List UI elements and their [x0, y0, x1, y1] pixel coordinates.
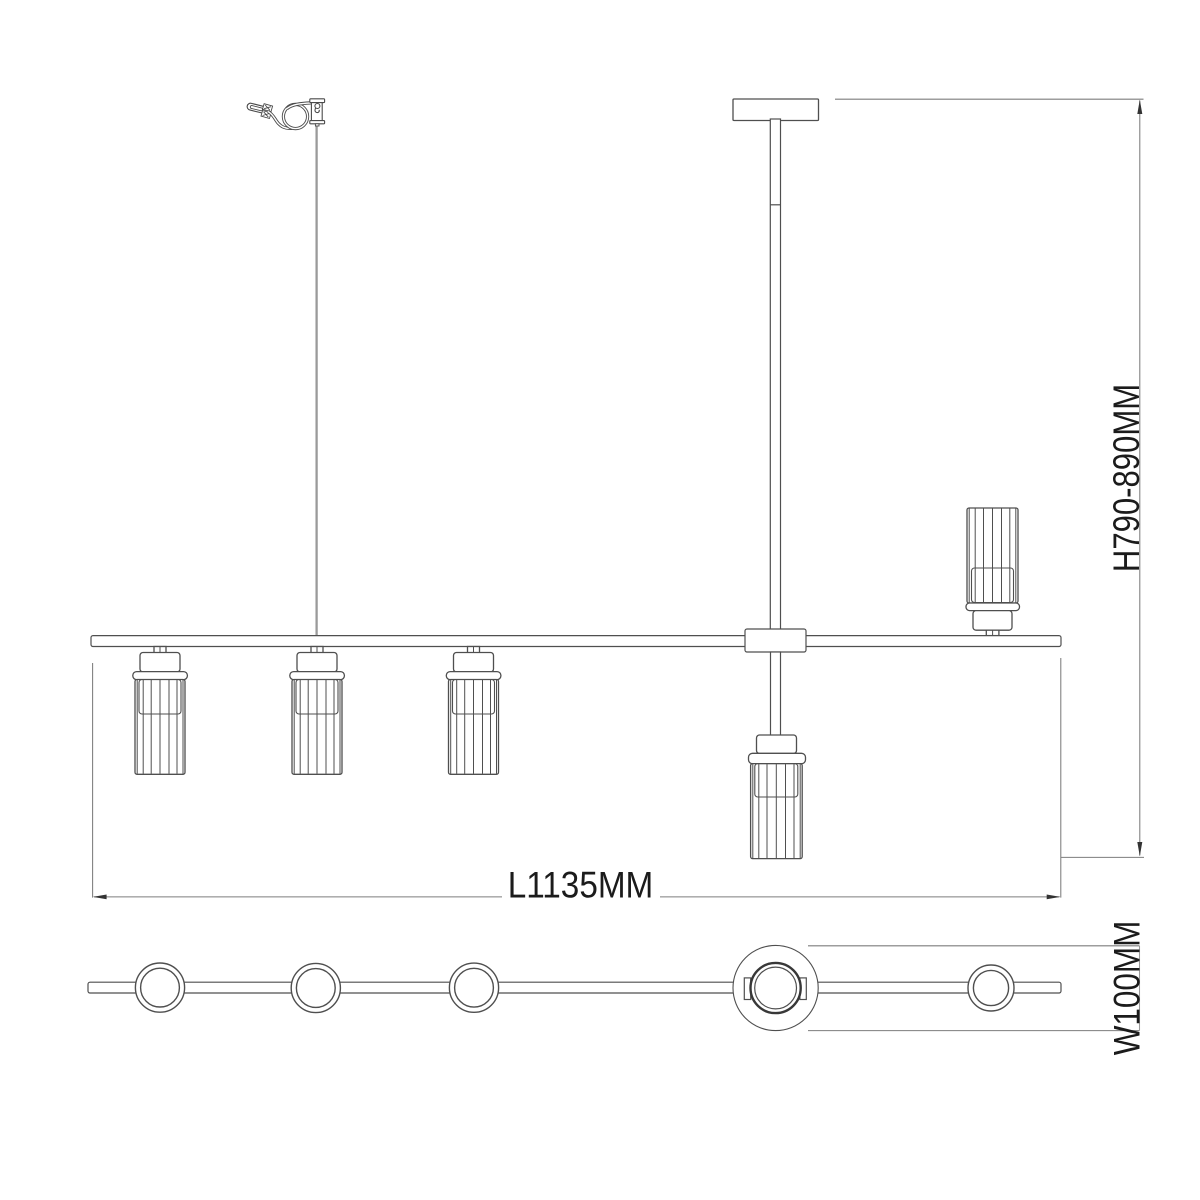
svg-text:W100MM: W100MM — [1107, 921, 1148, 1056]
svg-text:L1135MM: L1135MM — [508, 865, 654, 906]
svg-text:H790-890MM: H790-890MM — [1106, 384, 1147, 572]
